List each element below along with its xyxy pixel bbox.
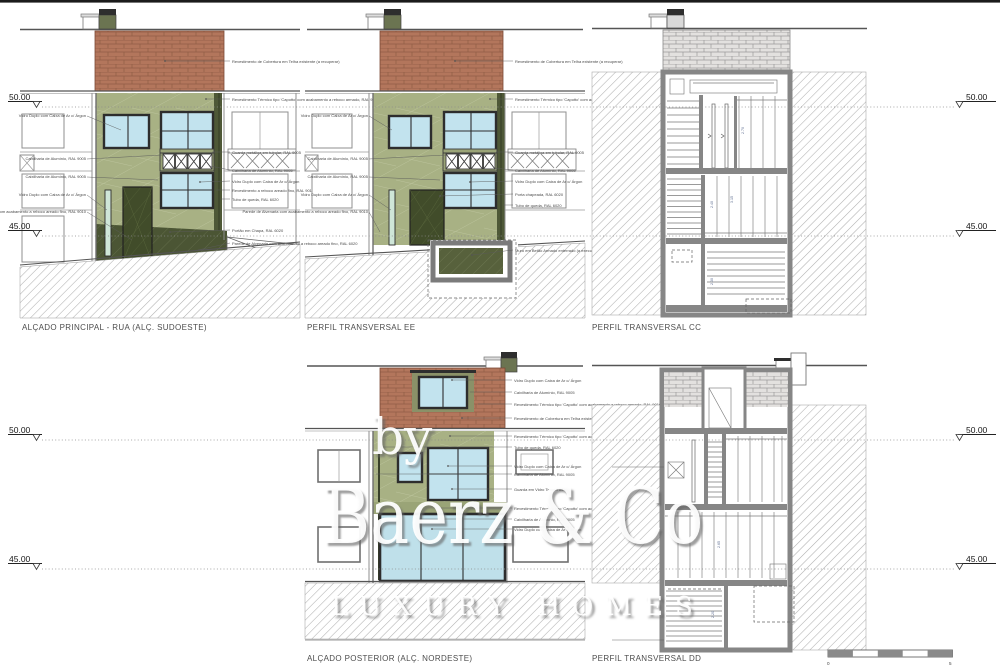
level-marker-45-bottom-left: 45.00 <box>8 554 42 570</box>
sheet-top-border <box>0 0 1000 3</box>
roof-section-left <box>664 372 704 407</box>
drawing-sheet: Vidro Duplo com Caixa de Ar c/ Árgon Cai… <box>0 0 1000 670</box>
annotation: Vidro Duplo com Caixa de Ar c/ Árgon <box>232 179 299 184</box>
level-marker-50-top-left: 50.00 <box>8 92 42 108</box>
annotation: Revestimento de Cobertura em Telha exist… <box>515 59 623 64</box>
scale-five: 5 <box>949 661 952 666</box>
level-value: 45.00 <box>9 221 31 231</box>
dim-text: 2.70 <box>741 127 745 134</box>
level-marker-45-top-right: 45.00 <box>956 221 996 237</box>
level-value: 45.00 <box>966 221 988 231</box>
annotation: Caixilharia de Alumínio, RAL 9005 <box>514 472 575 477</box>
annotation: Tubo de queda, RAL 6020 <box>514 445 561 450</box>
dim-text: 3.15 <box>730 196 734 203</box>
annotation: Portão em Chapa, RAL 6020 <box>232 228 284 233</box>
annotation: Caixilharia de Alumínio, RAL 9005 <box>514 390 575 395</box>
window-upper-right <box>444 112 496 151</box>
annotation: Caixilharia de Alumínio, RAL 9005 <box>307 174 368 179</box>
ground-hatch-band <box>305 583 585 639</box>
scale-zero: 0 <box>827 661 830 666</box>
dim-text: 2.20 <box>711 611 715 618</box>
drawing-title: ALÇADO PRINCIPAL - RUA (ALÇ. SUDOESTE) <box>22 323 207 332</box>
drawing-title: PERFIL TRANSVERSAL CC <box>592 323 701 332</box>
annotation: Parede de Alvenaria com acabamento a reb… <box>243 209 369 214</box>
door-sidelight <box>389 190 395 245</box>
balcony-railing <box>443 149 497 171</box>
level-marker-45-bottom-right: 45.00 <box>956 554 996 570</box>
level-marker-50-top-right: 50.00 <box>956 92 996 108</box>
chimney <box>81 9 116 29</box>
neighbour-left <box>20 93 96 268</box>
annotation: Caixilharia de Alumínio, RAL 9005 <box>515 168 576 173</box>
annotation: Guarda metálica em tubular, RAL 9005 <box>515 150 585 155</box>
level-value: 45.00 <box>9 554 31 564</box>
annotation: Caixilharia de Alumínio, RAL 9005 <box>232 168 293 173</box>
window-mid <box>444 173 496 208</box>
level-value: 45.00 <box>966 554 988 564</box>
roof-section-right <box>745 372 788 407</box>
drawing-title: ALÇADO POSTERIOR (ALÇ. NORDESTE) <box>307 654 472 663</box>
basement-pit <box>428 240 518 298</box>
window-upper-left <box>389 116 431 148</box>
drawing-title: PERFIL TRANSVERSAL DD <box>592 654 701 663</box>
dim-text: 2.40 <box>710 201 714 208</box>
level-value: 50.00 <box>9 425 31 435</box>
window-upper-left <box>104 115 149 148</box>
roof-section <box>663 30 790 72</box>
scale-bar: 0 5 <box>827 650 953 666</box>
annotation: Revestimento Térmico tipo 'Capotto' com … <box>232 97 380 102</box>
dormer-window <box>410 370 476 412</box>
ground-floor-glazing <box>380 514 505 581</box>
annotation: Vidro Duplo com Caixa de Ar c/ Árgon <box>514 378 581 383</box>
annotation: Tubo de queda, RAL 6020 <box>515 203 562 208</box>
annotation: Revestimento de Cobertura em Telha exist… <box>232 59 340 64</box>
annotation: Vidro Duplo com Caixa de Ar c/ Árgon <box>19 113 86 118</box>
annotation: Guarda metálica em tubular, RAL 9005 <box>232 150 302 155</box>
annotation: Vidro Duplo com Caixa de Ar c/ Árgon <box>301 113 368 118</box>
dim-text: 2.30 <box>710 278 714 285</box>
annotation: Caixilharia de Alumínio, RAL 9005 <box>25 174 86 179</box>
chimney <box>366 9 401 29</box>
architectural-drawing-canvas: Vidro Duplo com Caixa de Ar c/ Árgon Cai… <box>0 0 1000 670</box>
ground-hatch-right <box>790 405 866 650</box>
neighbour-left <box>318 431 373 583</box>
drawing-title: PERFIL TRANSVERSAL EE <box>307 323 415 332</box>
annotation: Parede de Alvenaria com acabamento a reb… <box>232 241 358 246</box>
level-marker-50-bottom-right: 50.00 <box>956 425 996 441</box>
ground-hatch-left <box>592 405 662 583</box>
chimney <box>649 9 684 28</box>
dim-text: 2.65 <box>717 541 721 548</box>
annotation: Caixilharia de Alumínio, RAL 9005 <box>307 156 368 161</box>
annotation: Vidro Duplo com Caixa de Ar c/ Árgon <box>514 464 581 469</box>
annotation: Porta chapeada, RAL 6020 <box>515 192 564 197</box>
annotation: Vidro Duplo com Caixa de Ar c/ Árgon <box>19 192 86 197</box>
annotation: Vidro Duplo com Caixa de Ar c/ Árgon <box>301 192 368 197</box>
window-mid <box>161 173 213 208</box>
annotation: Tubo de queda, RAL 6020 <box>232 197 279 202</box>
annotation: Vidro Duplo com Caixa de Ar c/ Árgon <box>514 527 581 532</box>
level-value: 50.00 <box>9 92 31 102</box>
ground-hatch-left <box>592 72 663 315</box>
balcony-railing <box>160 149 214 171</box>
annotation: Guarda em Vidro Temperado <box>514 487 566 492</box>
annotation: Muro em Betão Armado enterrado (a execut… <box>515 248 599 253</box>
level-value: 50.00 <box>966 425 988 435</box>
annotation: Caixilharia de Alumínio, RAL 9005 <box>25 156 86 161</box>
window-small <box>398 453 422 482</box>
drawing-perfil-cc: 2.70 2.40 3.15 2.30 PERFIL TRANSVERSAL C… <box>592 9 867 332</box>
door-sidelight <box>105 190 111 256</box>
annotation: Caixilharia de Alumínio, RAL 9005 <box>514 517 575 522</box>
annotation: Parede de Alvenaria com acabamento a reb… <box>0 209 87 214</box>
drawing-perfil-dd: 2.65 2.20 0 5 PERFIL TRANSVERSAL DD <box>592 353 953 666</box>
ground-hatch-right <box>790 72 866 315</box>
level-marker-50-bottom-left: 50.00 <box>8 425 42 441</box>
annotation: Vidro Duplo com Caixa de Ar c/ Árgon <box>515 179 582 184</box>
window-upper-right <box>161 112 213 151</box>
dormer-shaft <box>703 368 745 432</box>
level-value: 50.00 <box>966 92 988 102</box>
